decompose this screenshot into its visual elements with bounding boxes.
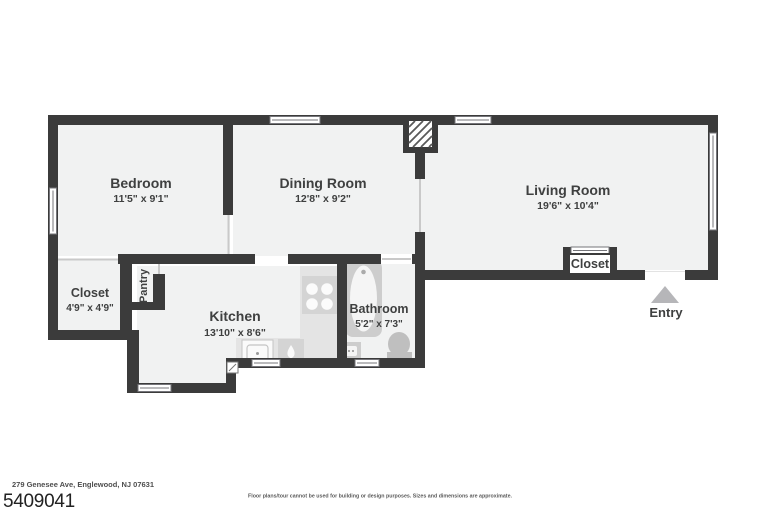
chimney-shaft — [403, 115, 438, 153]
wall-dining-living-divider — [415, 232, 425, 368]
wall-bathroom-bottom — [337, 358, 425, 368]
wall-kitchen-bath-divider — [337, 254, 347, 368]
window-living-top — [455, 117, 491, 124]
living-closet-door-symbol — [571, 247, 609, 254]
bedroom-label: Bedroom — [110, 175, 171, 191]
wall-bedroom-bottom — [118, 254, 255, 264]
wall-living-bottom-right — [685, 270, 718, 280]
window-bedroom-left — [50, 188, 57, 234]
window-dining-top — [270, 117, 320, 124]
closet-label: Closet — [71, 286, 110, 300]
window-bathroom-bottom — [355, 360, 379, 367]
stove-icon — [302, 276, 337, 314]
dining-label: Dining Room — [279, 175, 366, 191]
kitchen-label: Kitchen — [209, 308, 260, 324]
wall-closet-bottom — [48, 330, 137, 340]
kitchen-corner-door-symbol — [227, 362, 238, 373]
entry-arrow-icon — [651, 286, 679, 303]
address-text: 279 Genesee Ave, Englewood, NJ 07631 — [12, 480, 154, 489]
wall-kitchen-bottom-right — [226, 358, 347, 368]
listing-id-text: 5409041 — [3, 491, 75, 512]
living-dims: 19'6" x 10'4" — [537, 200, 599, 212]
wall-bedroom-dining-divider — [223, 115, 233, 215]
wall-closet-pantry-divider — [120, 264, 132, 330]
bathroom-dims: 5'2" x 7'3" — [355, 319, 403, 330]
footer: 279 Genesee Ave, Englewood, NJ 07631 540… — [3, 480, 513, 512]
window-living-right — [710, 133, 717, 230]
closet-dims: 4'9" x 4'9" — [66, 303, 114, 314]
bathroom-label: Bathroom — [349, 302, 408, 316]
wall-top — [48, 115, 718, 125]
floor-plan-canvas: Bedroom 11'5" x 9'1" Dining Room 12'8" x… — [0, 0, 768, 512]
entry-label: Entry — [649, 305, 683, 320]
disclaimer-text: Floor plans/tour cannot be used for buil… — [248, 494, 513, 500]
living-closet-label: Closet — [571, 257, 610, 271]
window-kitchen-bottom — [138, 385, 171, 392]
dining-dims: 12'8" x 9'2" — [295, 193, 351, 205]
living-label: Living Room — [526, 182, 611, 198]
bedroom-dims: 11'5" x 9'1" — [113, 193, 168, 205]
kitchen-dims: 13'10" x 8'6" — [204, 327, 266, 339]
pantry-label: Pantry — [138, 268, 150, 303]
floor-plan-page: Bedroom 11'5" x 9'1" Dining Room 12'8" x… — [0, 0, 768, 512]
window-kitchen-sink — [252, 360, 280, 367]
